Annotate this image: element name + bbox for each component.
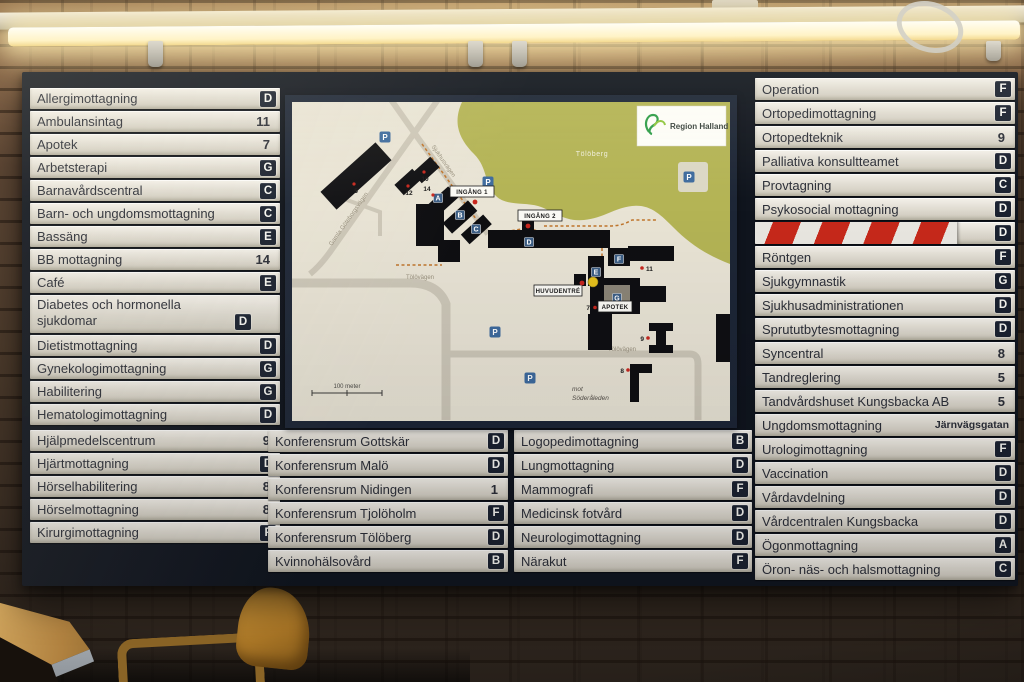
entry-label: Bassäng: [37, 229, 260, 244]
entry-label: Vårdcentralen Kungsbacka: [762, 514, 995, 529]
entry-label: Allergimottagning: [37, 91, 260, 106]
directory-row: DietistmottagningD: [30, 335, 280, 356]
hill-label: Tölöberg: [576, 151, 608, 158]
directory-row: LungmottagningD: [514, 454, 752, 476]
directory-row: HjärtmottagningD: [30, 453, 280, 474]
entry-label: Sjukgymnastik: [762, 274, 995, 289]
directory-row: Medicinsk fotvårdD: [514, 502, 752, 524]
entry-label: Urologimottagning: [762, 442, 995, 457]
entry-letter-badge: D: [995, 513, 1011, 529]
entry-letter-badge: D: [260, 338, 276, 354]
entry-number: 5: [998, 370, 1011, 385]
entry-letter-badge: B: [488, 553, 504, 569]
entry-letter-badge: D: [235, 314, 251, 330]
photo-scene: AllergimottagningDAmbulansintag11Apotek7…: [0, 0, 1024, 682]
chair: [118, 588, 318, 682]
entry-number: 8: [998, 346, 1011, 361]
directory-row: Diabetes och hormonella sjukdomarD: [30, 295, 280, 333]
directory-panel-center-left: Konferensrum GottskärDKonferensrum MalöD…: [268, 430, 508, 574]
entry-label: Diabetes och hormonella sjukdomar: [37, 295, 235, 329]
directory-row: Psykosocial mottagningD: [755, 198, 1015, 220]
directory-row: Konferensrum Nidingen1: [268, 478, 508, 500]
fluorescent-light-fixture: [0, 0, 1024, 70]
directory-row: KirurgimottagningF: [30, 522, 280, 543]
entry-number: 14: [256, 252, 276, 267]
mount-bracket: [512, 41, 527, 67]
svg-text:8: 8: [620, 368, 624, 375]
entry-label: Apotek: [37, 137, 263, 152]
entry-label: Ungdomsmottagning: [762, 418, 935, 433]
directory-row: Konferensrum GottskärD: [268, 430, 508, 452]
entry-letter-badge: F: [488, 505, 504, 521]
directory-row: ÖgonmottagningA: [755, 534, 1015, 556]
directory-row: SjukhusadministrationenD: [755, 294, 1015, 316]
directory-row: Ortopedteknik9: [755, 126, 1015, 148]
entry-letter-badge: D: [995, 321, 1011, 337]
entry-letter-badge: D: [260, 91, 276, 107]
svg-text:INGÅNG 1: INGÅNG 1: [456, 189, 488, 196]
svg-text:INGÅNG 2: INGÅNG 2: [524, 213, 556, 220]
svg-text:7: 7: [586, 305, 590, 312]
directory-row: Tandreglering5: [755, 366, 1015, 388]
directory-row: MammografiF: [514, 478, 752, 500]
entry-letter-badge: D: [732, 529, 748, 545]
directory-row: BarnavårdscentralC: [30, 180, 280, 201]
directory-row: Tandvårdshuset Kungsbacka AB5: [755, 390, 1015, 412]
entry-letter-badge: A: [995, 537, 1011, 553]
entry-street-text: Järnvägsgatan: [935, 419, 1011, 431]
entry-label: Provtagning: [762, 178, 995, 193]
entry-label: Dietistmottagning: [37, 338, 260, 353]
entry-label: Café: [37, 275, 260, 290]
entry-label: Hematologimottagning: [37, 407, 260, 422]
directory-row: Palliativa konsultteametD: [755, 150, 1015, 172]
directory-row: SprututbytesmottagningD: [755, 318, 1015, 340]
svg-text:mot: mot: [572, 386, 584, 393]
svg-text:D: D: [526, 240, 531, 247]
directory-row: NeurologimottagningD: [514, 526, 752, 548]
svg-text:14: 14: [423, 186, 431, 193]
entry-letter-badge: D: [488, 433, 504, 449]
entry-label: Konferensrum Tjolöholm: [275, 506, 488, 521]
directory-row: Vårdcentralen KungsbackaD: [755, 510, 1015, 532]
entry-letter-badge: F: [995, 105, 1011, 121]
directory-row: GynekologimottagningG: [30, 358, 280, 379]
svg-text:P: P: [382, 133, 388, 142]
directory-row: Syncentral8: [755, 342, 1015, 364]
entry-label: Närakut: [521, 554, 732, 569]
entry-label: Gynekologimottagning: [37, 361, 260, 376]
entry-letter-badge: G: [260, 361, 276, 377]
entry-letter-badge: C: [260, 206, 276, 222]
entry-label: Kirurgimottagning: [37, 525, 260, 540]
svg-text:Söderåleden: Söderåleden: [572, 394, 609, 402]
entry-letter-badge: C: [995, 177, 1011, 193]
entry-label: Sjukhusadministrationen: [762, 298, 995, 313]
directory-row: Hjälpmedelscentrum9: [30, 430, 280, 451]
directory-row: SjukgymnastikG: [755, 270, 1015, 292]
map-scale-label: 100 meter: [333, 384, 360, 390]
entry-letter-badge: D: [260, 407, 276, 423]
entry-label: Syncentral: [762, 346, 998, 361]
entry-letter-badge: D: [995, 201, 1011, 217]
entry-label: Konferensrum Malö: [275, 458, 488, 473]
entry-label: Ortopedteknik: [762, 130, 998, 145]
svg-text:9: 9: [640, 336, 644, 343]
entry-label: Sprututbytesmottagning: [762, 322, 995, 337]
entry-label: Tandreglering: [762, 370, 998, 385]
region-halland-logo: Region Halland: [637, 106, 728, 146]
entry-letter-badge: B: [732, 433, 748, 449]
directory-row: ProvtagningC: [755, 174, 1015, 196]
directory-row: AllergimottagningD: [30, 88, 280, 109]
entry-letter-badge: F: [995, 81, 1011, 97]
entry-letter-badge: D: [995, 297, 1011, 313]
svg-text:P: P: [686, 173, 692, 182]
chair-backrest: [234, 584, 314, 671]
entry-label: Mammografi: [521, 482, 732, 497]
entry-label: Medicinsk fotvård: [521, 506, 732, 521]
entry-label: Hjälpmedelscentrum: [37, 433, 263, 448]
site-map-svg: Tölöberg Gamla Göteborgsvägen Sjukhusväg…: [292, 102, 730, 421]
directory-row: UngdomsmottagningJärnvägsgatan: [755, 414, 1015, 436]
entry-label: Tandvårdshuset Kungsbacka AB: [762, 394, 998, 409]
entry-letter-badge: F: [995, 441, 1011, 457]
directory-panel-center-right: LogopedimottagningBLungmottagningDMammog…: [514, 430, 752, 574]
entry-number: 9: [998, 130, 1011, 145]
directory-row: NärakutF: [514, 550, 752, 572]
entry-letter-badge: G: [995, 273, 1011, 289]
entry-label: Röntgen: [762, 250, 995, 265]
entry-letter-badge: F: [732, 481, 748, 497]
directory-row: HabiliteringG: [30, 381, 280, 402]
entry-label: Arbetsterapi: [37, 160, 260, 175]
entry-letter-badge: D: [995, 465, 1011, 481]
entry-label: Habilitering: [37, 384, 260, 399]
directory-row: OrtopedimottagningF: [755, 102, 1015, 124]
hazard-tape: [755, 222, 958, 244]
entry-label: Konferensrum Tölöberg: [275, 530, 488, 545]
entry-letter-badge: D: [732, 457, 748, 473]
entry-label: Lungmottagning: [521, 458, 732, 473]
directory-row: Apotek7: [30, 134, 280, 155]
entry-number: 5: [998, 394, 1011, 409]
directory-row: HematologimottagningD: [30, 404, 280, 425]
directory-row: VårdavdelningD: [755, 486, 1015, 508]
desk: [0, 596, 112, 682]
svg-text:HUVUDENTRÉ: HUVUDENTRÉ: [536, 287, 581, 295]
site-map: Tölöberg Gamla Göteborgsvägen Sjukhusväg…: [285, 95, 737, 428]
entry-label: Vårdavdelning: [762, 490, 995, 505]
svg-text:C: C: [473, 227, 478, 234]
directory-row: CaféE: [30, 272, 280, 293]
directory-row: ArbetsterapiG: [30, 157, 280, 178]
svg-text:P: P: [492, 328, 498, 337]
entry-number: 7: [263, 137, 276, 152]
entry-label: Ögonmottagning: [762, 538, 995, 553]
entry-letter-badge: E: [260, 229, 276, 245]
directory-row: VaccinationD: [755, 462, 1015, 484]
directory-row: RöntgenF: [755, 246, 1015, 268]
entry-label: Operation: [762, 82, 995, 97]
entry-label: Kvinnohälsovård: [275, 554, 488, 569]
mount-bracket: [986, 41, 1001, 61]
entry-letter-badge: D: [732, 505, 748, 521]
entry-letter-badge: D: [995, 225, 1011, 241]
entry-letter-badge: G: [260, 160, 276, 176]
directory-panel-right: OperationFOrtopedimottagningFOrtopedtekn…: [755, 78, 1015, 582]
entry-label: Hjärtmottagning: [37, 456, 260, 471]
entry-label: Barn- och ungdomsmottagning: [37, 206, 260, 221]
svg-text:APOTEK: APOTEK: [602, 305, 629, 311]
entry-number: 1: [491, 482, 504, 497]
directory-row: LogopedimottagningB: [514, 430, 752, 452]
directory-row: Öron- näs- och halsmottagningC: [755, 558, 1015, 580]
svg-text:12: 12: [405, 190, 413, 197]
entry-label: Öron- näs- och halsmottagning: [762, 562, 995, 577]
svg-text:A: A: [435, 196, 440, 203]
entry-label: Ortopedimottagning: [762, 106, 995, 121]
entry-letter-badge: D: [995, 489, 1011, 505]
entry-letter-badge: C: [995, 561, 1011, 577]
entry-label: Neurologimottagning: [521, 530, 732, 545]
directory-row: KvinnohälsovårdB: [268, 550, 508, 572]
entry-letter-badge: F: [732, 553, 748, 569]
entry-label: BB mottagning: [37, 252, 256, 267]
directory-row: Konferensrum TjolöholmF: [268, 502, 508, 524]
entry-letter-badge: E: [260, 275, 276, 291]
directory-row: Barn- och ungdomsmottagningC: [30, 203, 280, 224]
directory-row: Hörselhabilitering8: [30, 476, 280, 497]
svg-text:E: E: [594, 270, 599, 277]
svg-text:10: 10: [421, 176, 429, 183]
entry-letter-badge: D: [488, 457, 504, 473]
directory-board: AllergimottagningDAmbulansintag11Apotek7…: [22, 72, 1018, 586]
entry-letter-badge: F: [995, 249, 1011, 265]
entry-label: Konferensrum Gottskär: [275, 434, 488, 449]
svg-text:11: 11: [646, 266, 653, 273]
entry-label: Palliativa konsultteamet: [762, 154, 995, 169]
directory-row: Ambulansintag11: [30, 111, 280, 132]
region-halland-text: Region Halland: [670, 122, 728, 131]
mount-bracket: [468, 41, 483, 67]
directory-row: D: [755, 222, 1015, 244]
entry-label: Barnavårdscentral: [37, 183, 260, 198]
entry-label: Ambulansintag: [37, 114, 256, 129]
entry-label: Hörselmottagning: [37, 502, 263, 517]
directory-row: UrologimottagningF: [755, 438, 1015, 460]
entry-label: Logopedimottagning: [521, 434, 732, 449]
svg-text:P: P: [527, 374, 533, 383]
svg-text:F: F: [617, 257, 622, 264]
directory-row: Hörselmottagning8: [30, 499, 280, 520]
mount-bracket: [148, 41, 163, 67]
entry-letter-badge: D: [488, 529, 504, 545]
svg-text:B: B: [457, 213, 462, 220]
svg-text:Tölövägen: Tölövägen: [406, 275, 434, 281]
directory-panel-left: AllergimottagningDAmbulansintag11Apotek7…: [30, 88, 280, 545]
entry-number: 11: [256, 114, 276, 129]
entry-label: Psykosocial mottagning: [762, 202, 995, 217]
directory-row: Konferensrum MalöD: [268, 454, 508, 476]
entry-label: Konferensrum Nidingen: [275, 482, 491, 497]
directory-row: BassängE: [30, 226, 280, 247]
entry-letter-badge: G: [260, 384, 276, 400]
directory-row: Konferensrum TölöbergD: [268, 526, 508, 548]
directory-row: OperationF: [755, 78, 1015, 100]
entry-label: Hörselhabilitering: [37, 479, 263, 494]
svg-text:Tölövägen: Tölövägen: [608, 347, 636, 353]
bus-stop-dot: [588, 277, 598, 287]
svg-text:5: 5: [354, 188, 358, 195]
entry-letter-badge: C: [260, 183, 276, 199]
directory-row: BB mottagning14: [30, 249, 280, 270]
entry-letter-badge: D: [995, 153, 1011, 169]
entry-label: Vaccination: [762, 466, 995, 481]
